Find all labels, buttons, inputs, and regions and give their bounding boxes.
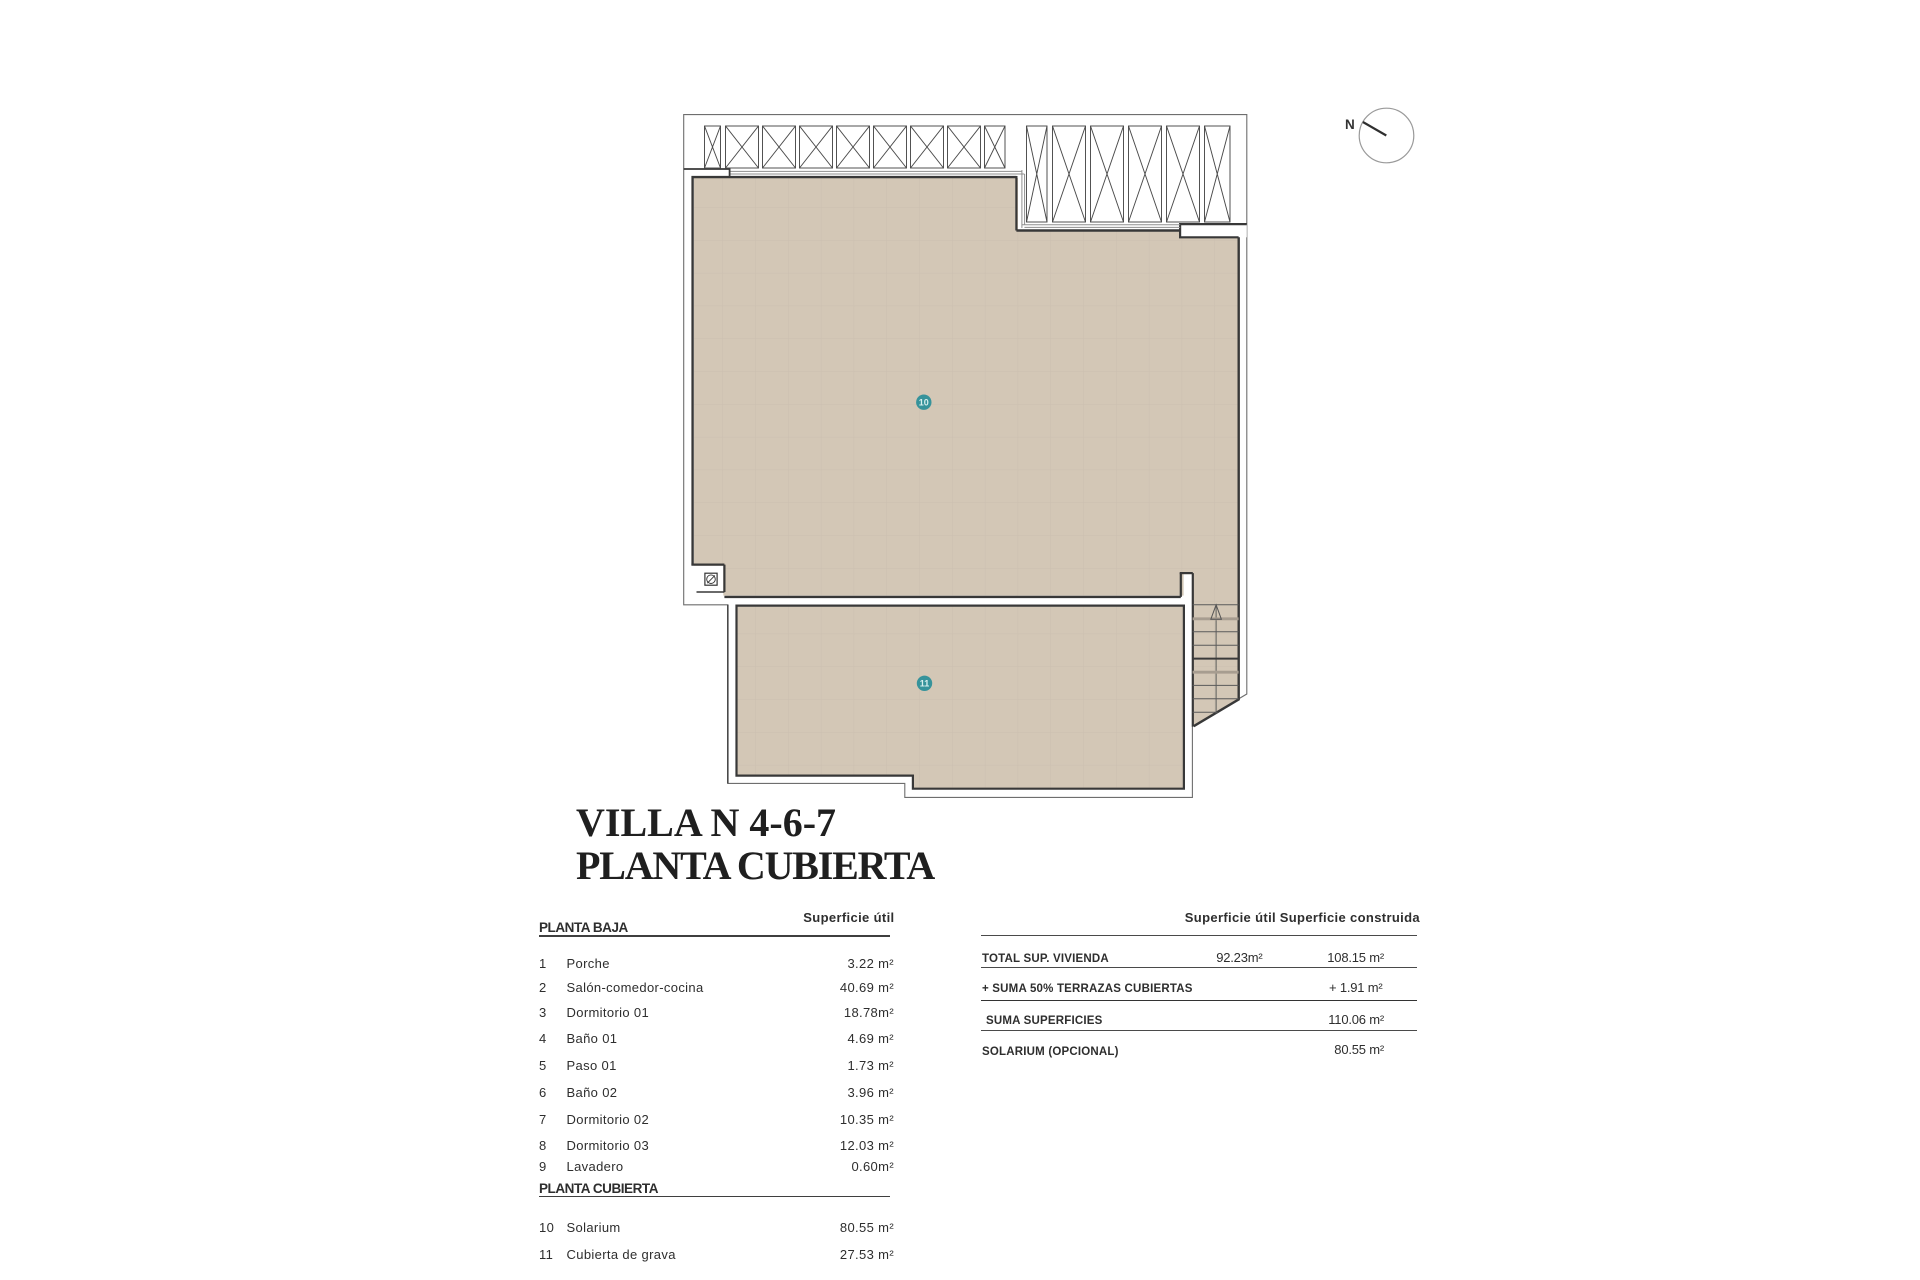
svg-text:10: 10 <box>919 398 929 408</box>
svg-text:11: 11 <box>920 679 930 689</box>
svg-text:N: N <box>1345 117 1355 132</box>
